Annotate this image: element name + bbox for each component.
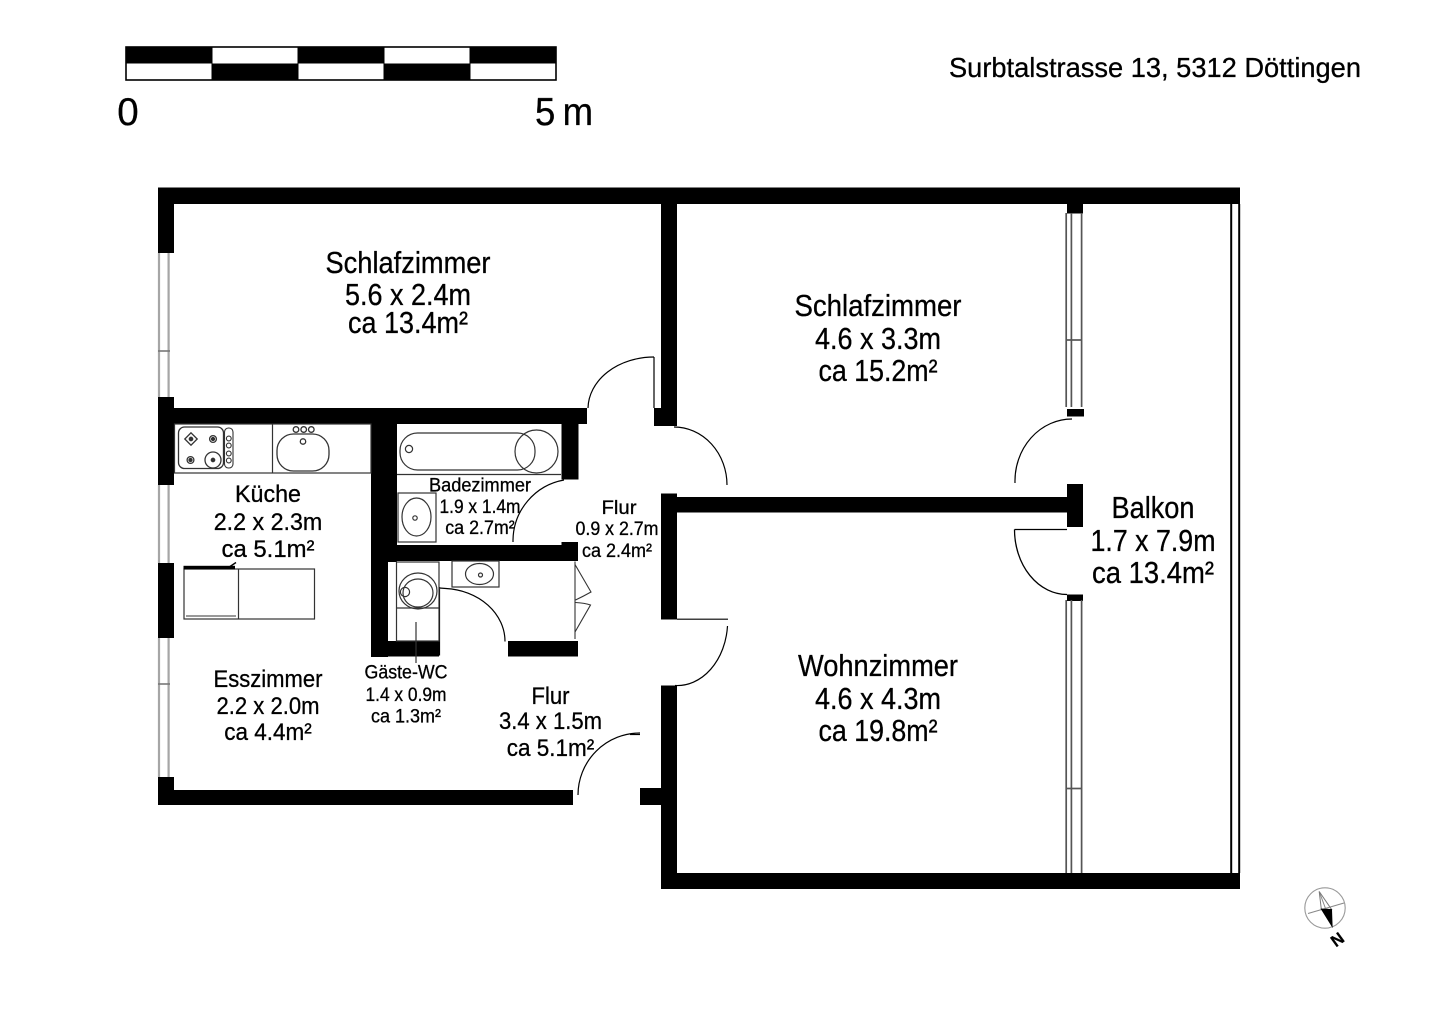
svg-text:Surbtalstrasse 13, 5312 Döttin: Surbtalstrasse 13, 5312 Döttingen: [949, 52, 1361, 83]
svg-text:1.7 x 7.9m: 1.7 x 7.9m: [1091, 523, 1216, 558]
svg-text:1.9 x 1.4m: 1.9 x 1.4m: [440, 497, 521, 518]
svg-text:2.2 x 2.0m: 2.2 x 2.0m: [217, 693, 320, 720]
svg-text:Flur: Flur: [532, 683, 570, 710]
svg-text:ca 2.4m²: ca 2.4m²: [582, 541, 653, 562]
svg-text:ca 13.4m²: ca 13.4m²: [1092, 555, 1214, 590]
svg-text:Küche: Küche: [235, 481, 301, 508]
svg-text:ca 2.7m²: ca 2.7m²: [445, 518, 515, 539]
svg-text:3.4 x 1.5m: 3.4 x 1.5m: [499, 708, 602, 735]
svg-text:Badezimmer: Badezimmer: [429, 476, 532, 497]
svg-text:5 m: 5 m: [535, 91, 593, 134]
svg-text:Wohnzimmer: Wohnzimmer: [798, 648, 958, 683]
svg-text:0.9 x 2.7m: 0.9 x 2.7m: [576, 519, 659, 540]
svg-text:2.2 x 2.3m: 2.2 x 2.3m: [214, 509, 323, 536]
svg-text:ca 5.1m²: ca 5.1m²: [222, 536, 315, 563]
svg-text:Gäste-WC: Gäste-WC: [365, 663, 448, 684]
svg-text:Balkon: Balkon: [1112, 490, 1195, 525]
svg-text:ca 1.3m²: ca 1.3m²: [371, 707, 442, 728]
svg-text:0: 0: [117, 91, 138, 134]
svg-text:Esszimmer: Esszimmer: [214, 666, 323, 693]
svg-text:1.4 x 0.9m: 1.4 x 0.9m: [366, 685, 447, 706]
svg-text:Schlafzimmer: Schlafzimmer: [326, 245, 491, 280]
svg-text:4.6 x 4.3m: 4.6 x 4.3m: [815, 681, 941, 716]
svg-text:ca 13.4m²: ca 13.4m²: [348, 305, 468, 340]
svg-text:Schlafzimmer: Schlafzimmer: [795, 288, 962, 323]
svg-text:ca 5.1m²: ca 5.1m²: [507, 735, 595, 762]
svg-text:ca 19.8m²: ca 19.8m²: [819, 713, 938, 748]
svg-text:ca 4.4m²: ca 4.4m²: [224, 719, 312, 746]
svg-text:Flur: Flur: [602, 498, 638, 519]
svg-text:ca 15.2m²: ca 15.2m²: [819, 353, 938, 388]
svg-text:4.6 x 3.3m: 4.6 x 3.3m: [815, 321, 941, 356]
